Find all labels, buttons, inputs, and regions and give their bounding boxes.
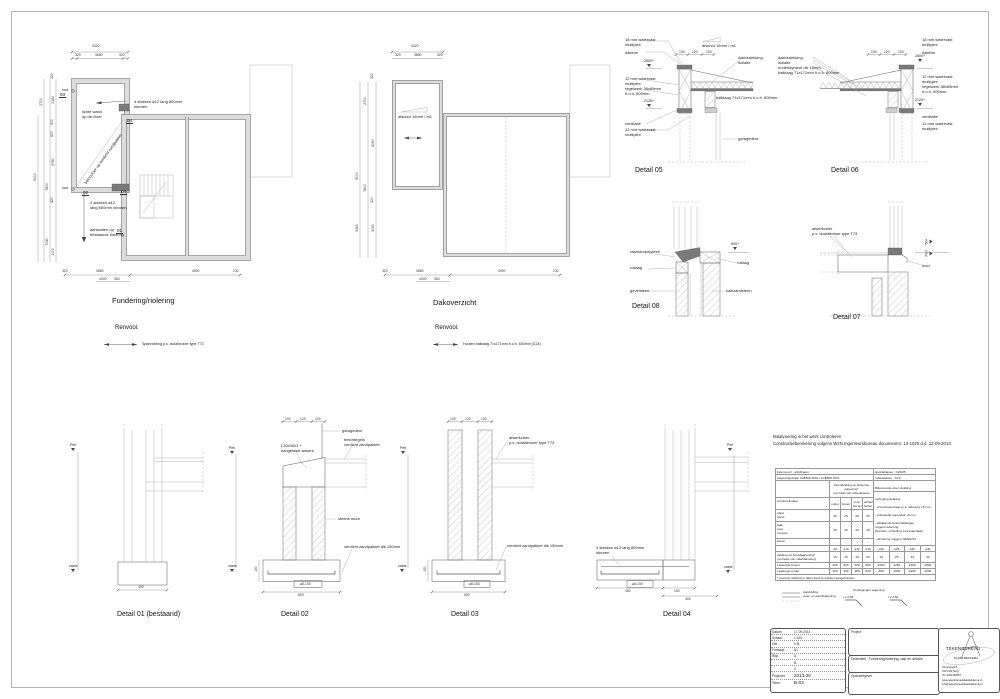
- d02-label-betontegels: betontegels verdicht zandpakket: [344, 437, 380, 447]
- detail04-title: Detail 04: [663, 611, 691, 618]
- dim-label: 4320: [92, 44, 100, 48]
- dim-label: 3680: [95, 53, 103, 57]
- dim-label: 100: [898, 50, 904, 54]
- level-triangle-icon: [230, 569, 234, 572]
- level-triangle-icon: [647, 64, 651, 67]
- d05-label-regelwerk: regelwerk 38x89mm h.o.h. 600mm: [625, 86, 661, 96]
- dim-label: 320: [75, 53, 81, 57]
- dim-label: 600: [464, 593, 470, 597]
- dim-label: 450: [625, 589, 631, 593]
- col-boven: boven: [841, 498, 852, 510]
- cell: 15: [852, 552, 863, 562]
- meta-row-teknr: Teknr.:B-03: [771, 680, 845, 686]
- level-triangle-icon: [929, 251, 932, 255]
- d02-level-vaste: vaste: [228, 565, 237, 572]
- d06-label-stack: dakbedekking isolatie underlayment dik 1…: [778, 55, 839, 75]
- dim-label: 120: [465, 417, 471, 421]
- cell: -: [863, 538, 874, 545]
- bijkomende-eisen-cell: Bijkomende eisen dekking verhoging dekki…: [874, 481, 936, 546]
- detail01-title: Detail 01 (bestaand): [117, 611, 180, 618]
- d01-level-vaste: vaste: [69, 565, 78, 572]
- ombuiging-label: Ombuigingen wapening: [853, 588, 885, 592]
- dim-label: 320: [437, 53, 443, 57]
- formaat-label: Formaat:: [772, 648, 794, 652]
- cell: 25: [852, 510, 863, 522]
- level-triangle-icon: [401, 451, 405, 454]
- d06-label-regelwerk: regelwerk 38x89mm h.o.h. 600mm: [922, 84, 958, 94]
- dim-label: 320: [370, 73, 374, 79]
- dim-label: 500: [50, 119, 54, 125]
- dim-label: 150: [254, 566, 258, 572]
- onderdeel-label: Onderdeel: [851, 657, 866, 661]
- d07-label-afwerkvloer: afwerkvloer p.s. isolatievloer type T73: [812, 226, 857, 236]
- d02-label-steens-muur: steens muur: [338, 516, 360, 521]
- d06-level-2600: 2600+: [915, 55, 925, 62]
- bureau-name: TEKENBUREAU: [946, 646, 980, 651]
- d07-level-50: 50+: [926, 238, 933, 244]
- note-maatvoering: Maatvoering in het werk controleren: [773, 434, 841, 439]
- d07-label-lood: lood: [922, 263, 930, 268]
- get-value: K.B.: [794, 642, 800, 646]
- dim-label: 320: [119, 53, 125, 57]
- dim-label: 320: [382, 269, 388, 273]
- dim-label: 1000: [51, 248, 55, 256]
- d08-label-rollaag-right: rollaag: [737, 260, 749, 265]
- milieuklasse-label: milieuklasse :: [875, 476, 894, 480]
- d06-label-ventilatie: ventilatie: [922, 114, 938, 119]
- cell: -: [830, 538, 841, 545]
- opdrachtgever-box: Opdrachtgever: [848, 672, 940, 695]
- level-triangle-icon: [400, 569, 404, 572]
- dim-label: 5360: [355, 224, 359, 232]
- dim-label: 600: [298, 593, 304, 597]
- projectnr-value: 2013-20: [794, 673, 811, 678]
- renvooi-item: Spanrichting p.s. isolatievloer type T73: [142, 342, 204, 346]
- cell: 40: [920, 552, 936, 562]
- dim-label: 100: [315, 417, 321, 421]
- dim-label: 9000: [33, 173, 37, 181]
- dim-label: 4000: [419, 277, 427, 281]
- cell: 30: [841, 522, 852, 539]
- detail02-title: Detail 02: [281, 611, 309, 618]
- dim-label: 4900: [498, 269, 506, 273]
- dim-label: 230: [233, 269, 239, 273]
- detail-ref-02: 02: [82, 190, 89, 196]
- milieuklasse-value: XC2: [894, 476, 900, 480]
- cell: 25: [889, 552, 905, 562]
- dim-label: 7040: [45, 238, 49, 246]
- onderdeel-value: Fundering/riolering, dak en details: [869, 657, 923, 661]
- bureau-web: www.tekenbureauklaasbekkema.nl: [942, 679, 982, 682]
- d05-label-daktrim: daktrim: [625, 50, 638, 55]
- d05-level-2125: 2125+: [644, 100, 654, 107]
- formaat-value: A1: [794, 648, 798, 652]
- bullet-item: - oncontroleerbaar (o.a. wtbeton) +5 mm: [875, 505, 934, 509]
- dim-label: 3680: [416, 269, 424, 273]
- renvooi-heading: Renvooi:: [115, 325, 139, 331]
- dim-label: 2700: [39, 98, 43, 106]
- project-box: Project: [848, 628, 940, 656]
- d08-label-raamdorpelsteen: raamdorpelsteen: [630, 249, 660, 254]
- dekking-header: betondekking op buitenste wapening* (op …: [830, 481, 874, 498]
- dim-label: 9000: [355, 172, 359, 180]
- dim-label: 400: [138, 585, 144, 589]
- detail-ref-01: 01: [116, 228, 123, 234]
- datum-label: Datum:: [772, 630, 794, 634]
- wapening-symbols-strip: Aanduiding vloer- en wandwapening Ombuig…: [775, 587, 935, 607]
- dim-label: 400: [685, 597, 691, 601]
- cell: 25: [841, 510, 852, 522]
- d06-label-multiplex18: 18 mm watervast multiplex: [922, 37, 952, 47]
- betondekking-table: betonsoort: grindbeton sterkteklasse : C…: [775, 468, 936, 581]
- level-triangle-icon: [647, 104, 651, 107]
- level-triangle-icon: [733, 247, 737, 250]
- d06-label-multiplex12b: 12 mm watervast multiplex: [922, 121, 952, 131]
- table-row: * grootste dekking in tabel dient te wor…: [776, 574, 936, 580]
- d02-level-peil: Peil: [229, 447, 235, 454]
- verhoging-label: verhoging dekking: [875, 497, 934, 501]
- dim-label: 4320: [411, 44, 419, 48]
- detail-ref-04: 04: [120, 189, 127, 195]
- d03-label-afwerkvloer: afwerkvloer p.s. isolatievloer type T73: [509, 435, 554, 445]
- drawing-sheet: 4320 320 3680 320 320 2180 2700 500 600 …: [0, 0, 1000, 699]
- radius-label: r ≥ 2,5d: [843, 595, 853, 599]
- d08-label-kalkzandsteen: kalkzandsteen: [726, 288, 752, 293]
- cell: 20: [874, 552, 890, 562]
- dim-label: 100: [871, 50, 877, 54]
- wapening-value: FeB500 HWL / FeB500 HKN: [800, 476, 839, 480]
- cell: 15: [841, 552, 852, 562]
- row-balk-poer: balk poer console: [776, 522, 830, 539]
- dim-label: 150: [423, 566, 427, 572]
- d08-label-rollaag-left: rollaag: [630, 265, 642, 270]
- cell: 20: [863, 552, 874, 562]
- col-voor-binnen: voor/ binnen: [852, 498, 863, 510]
- d03-rebar-label: ⌀8-150: [469, 582, 480, 586]
- dim-label: 350: [434, 277, 440, 281]
- dim-label: 100: [450, 417, 456, 421]
- cell: 25: [830, 510, 841, 522]
- dim-label: 7800: [363, 184, 367, 192]
- detail05-title: Detail 05: [635, 167, 663, 174]
- level-triangle-icon: [918, 103, 922, 106]
- detail07-title: Detail 07: [833, 314, 861, 321]
- dim-label: 230: [553, 269, 559, 273]
- dim-label: 2180: [51, 96, 55, 104]
- betonsoort-label: betonsoort:: [777, 470, 792, 474]
- detail06-title: Detail 06: [831, 167, 859, 174]
- sterkteklasse-label: sterkteklasse :: [875, 470, 895, 474]
- annotation-stekken-top: 4 stekken ø12 lang 800mm inboren: [134, 99, 182, 109]
- plan-fundering-title: Fundering/riolering: [112, 296, 175, 305]
- dim-label: 600: [50, 131, 54, 137]
- bureau-adres3: Tel. 0631199507: [942, 674, 961, 677]
- schaal-label: Schaal:: [772, 636, 794, 640]
- logo-box: TEKENBUREAU KLAAS BEKKEMA Pompstraat 5 9…: [938, 628, 1000, 693]
- col-constructiedeel: constructiedeel: [776, 498, 830, 510]
- col-achter-buiten: achter/ buiten: [863, 498, 874, 510]
- level-triangle-icon: [71, 569, 75, 572]
- dim-label: 2700: [363, 97, 367, 105]
- cell: -: [841, 538, 852, 545]
- hwa-label: hwa: [62, 186, 68, 190]
- bullet-item: - onbewerkt oppervlak +5 mm: [875, 513, 934, 517]
- cell: 25: [863, 510, 874, 522]
- dim-label: 5060: [371, 224, 375, 232]
- bijkomend-header: Bijkomende eisen dekking: [874, 485, 935, 491]
- dim-label: 5780: [51, 158, 55, 166]
- row-hoofdwapening: dekking op hoofdwapening* (op basis van …: [776, 552, 830, 562]
- d06-label-multiplex12a: 12 mm watervast multiplex: [922, 74, 952, 84]
- d05-label-garagedeur: garagedeur: [738, 136, 758, 141]
- d04-level-peil: Peil: [727, 444, 733, 451]
- renvooi-item: Houten balklaag 71x171mm h.o.h. 600mm (C…: [463, 342, 541, 346]
- cell: -: [852, 538, 863, 545]
- cell: 15: [830, 552, 841, 562]
- row-kolom: kolom: [776, 538, 830, 545]
- dim-label: 3680: [96, 269, 104, 273]
- d06-level-2125: 2125+: [915, 99, 925, 106]
- dim-label: 100: [706, 50, 712, 54]
- d03-label-zandpakket: verdicht zandpakket dik 150mm: [507, 543, 563, 548]
- d05-label-multiplex12a: 12 mm watervast multiplex: [625, 76, 655, 86]
- radius-label: r ≥ 2,5d: [888, 595, 898, 599]
- table-row: dekking op hoofdwapening* (op basis van …: [776, 552, 936, 562]
- betonsoort-value: grindbeton: [794, 470, 809, 474]
- d02-label-zandpakket: verdicht zandpakket dik 150mm: [344, 544, 400, 549]
- dim-label: 4900: [192, 269, 200, 273]
- d03-level-peil: Peil: [400, 447, 406, 454]
- d05-label-balklaag: balklaag 71x171mm h.o.h. 600mm: [716, 95, 777, 100]
- d04-level-vaste: vaste: [724, 566, 733, 573]
- detail-ref-04: 04: [126, 118, 133, 124]
- sterkteklasse-value: C20/25: [896, 470, 906, 474]
- col-onder: onder: [830, 498, 841, 510]
- aanduiding-label: Aanduiding vloer- en wandwapening: [803, 590, 836, 598]
- opdrachtgever-label: Opdrachtgever: [851, 674, 872, 678]
- dim-label: 320: [62, 269, 68, 273]
- dim-label: 8060: [371, 139, 375, 147]
- bullet-item: - afwijkende betondekkingen volgens teke…: [875, 521, 934, 533]
- dim-label: 120: [300, 417, 306, 421]
- d08-level-900: 900+: [731, 243, 739, 250]
- cell: 30: [830, 522, 841, 539]
- d01-level-peil: Peil: [70, 444, 76, 451]
- level-triangle-icon: [726, 570, 730, 573]
- wapening-label: wapeningsstaal:: [777, 476, 799, 480]
- d07-level-peil: Peil: [926, 250, 933, 256]
- dim-label: 100: [285, 417, 291, 421]
- d05-label-multiplex12b: 12 mm watervast multiplex: [625, 127, 655, 137]
- d05-level-2600: 2600+: [644, 60, 654, 67]
- projectnr-label: Projectnr.:: [772, 674, 794, 678]
- table-footnote: * grootste dekking in tabel dient te wor…: [776, 574, 936, 580]
- note-constructie: Constructieberekening volgens W2N Ingeni…: [773, 441, 951, 446]
- bullet-item: - uitvoering volgens NEN6722: [875, 537, 934, 541]
- d02-label-ankers: L30x30x3 + aangelaste ankers: [281, 443, 314, 453]
- dim-label: 420: [50, 197, 54, 203]
- level-triangle-icon: [71, 448, 75, 451]
- d03-level-vaste: vaste: [398, 565, 407, 572]
- detail08-title: Detail 08: [632, 303, 660, 310]
- wijz-a-value: A: [794, 654, 796, 658]
- cell: 30: [863, 522, 874, 539]
- level-triangle-icon: [728, 448, 732, 451]
- level-triangle-icon: [230, 451, 234, 454]
- titleblock-meta-box: Datum:17-09-2013 Schaal:1:100 Get.:K.B. …: [770, 628, 846, 693]
- d02-rebar-label: ⌀8-150: [300, 582, 311, 586]
- d04-rebar-label: ⌀8-150: [632, 582, 643, 586]
- detail03-title: Detail 03: [451, 611, 479, 618]
- cell: 30: [852, 522, 863, 539]
- annotation-afschot: afschot 16mm / m1: [398, 114, 432, 119]
- teknr-value: B-03: [794, 680, 804, 685]
- renvooi-heading: Renvooi:: [435, 325, 459, 331]
- teknr-label: Teknr.:: [772, 681, 794, 685]
- d02-label-garagedeur: garagedeur: [342, 428, 362, 433]
- dim-label: 320: [50, 73, 54, 79]
- annotation-stekken-bottom: 4 stekken ø12 lang 800mm inboren: [90, 200, 126, 210]
- annotation-lichte-wand: lichte wand op de vloer: [82, 109, 102, 119]
- d05-label-ventilatie: ventilatie: [625, 121, 641, 126]
- dim-label: 100: [481, 417, 487, 421]
- level-triangle-icon: [930, 240, 933, 244]
- wijz-c-value: C: [794, 667, 796, 671]
- wijz-b-value: B: [794, 661, 796, 665]
- d05-label-multiplex18: 18 mm watervast multiplex: [625, 37, 655, 47]
- dim-label: 350: [114, 277, 120, 281]
- get-label: Get.:: [772, 642, 794, 646]
- dim-label: 4000: [99, 277, 107, 281]
- d08-label-gevelsteen: gevelsteen: [630, 288, 649, 293]
- bureau-adres1: Pompstraat 5: [942, 666, 957, 669]
- level-triangle-icon: [918, 59, 922, 62]
- dim-label: 120: [884, 50, 890, 54]
- onderdeel-box: Onderdeel Fundering/riolering, dak en de…: [848, 655, 940, 673]
- d05-label-afschot: afschot 16mm / m1: [702, 43, 736, 48]
- row-plaat-wand: plaat wand: [776, 510, 830, 522]
- plan-dak-title: Dakoverzicht: [433, 298, 476, 307]
- dim-label: 100: [679, 50, 685, 54]
- bureau-adres2: 9331 AM Norg: [942, 670, 959, 673]
- project-label: Project: [851, 630, 861, 634]
- cell: 32: [905, 552, 921, 562]
- title-block: Datum:17-09-2013 Schaal:1:100 Get.:K.B. …: [770, 626, 998, 693]
- d05-label-dakbedekking: dakbedekking isolatie: [738, 55, 763, 65]
- schaal-value: 1:100: [794, 636, 802, 640]
- datum-value: 17-09-2013: [794, 630, 810, 634]
- bureau-email: info@tekenbureauklaasbekkema.nl: [942, 683, 983, 686]
- dim-label: 320: [395, 53, 401, 57]
- detail-ref-03: 03: [59, 92, 66, 98]
- dim-label: 3680: [414, 53, 422, 57]
- wijz-label: Wijz.:: [772, 654, 794, 658]
- dim-label: 7800: [45, 183, 49, 191]
- bureau-person: KLAAS BEKKEMA: [954, 656, 978, 660]
- dim-label: 320: [370, 197, 374, 203]
- table-row: betondekking op buitenste wapening* (op …: [776, 481, 936, 498]
- dim-label: 120: [692, 50, 698, 54]
- dim-label: 150: [674, 589, 680, 593]
- d04-label-stekken: 4 stekken ø12 lang 800mm inboren: [596, 545, 644, 555]
- meta-row-projectnr: Projectnr.:2013-20: [771, 672, 845, 679]
